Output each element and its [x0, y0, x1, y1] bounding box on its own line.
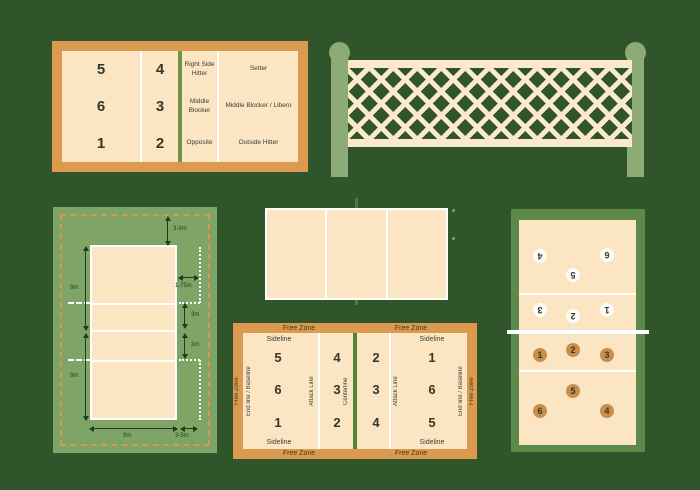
free-zone-label: Free Zone	[234, 323, 240, 459]
player-marker: 4	[533, 249, 547, 263]
measure-label: 3-5m	[175, 433, 189, 439]
end-line-label: End line / Baseline	[458, 333, 464, 449]
center-line	[92, 330, 175, 332]
positions-roles-court: 5 6 1 4 3 2 Right Side Hitter Middle Blo…	[52, 41, 308, 172]
attack-line-bottom	[519, 370, 636, 372]
player-marker: 1	[533, 348, 547, 362]
player-marker: 3	[533, 303, 547, 317]
free-zone-label: Free Zone	[355, 325, 467, 332]
attack-line-right	[389, 333, 391, 449]
player-marker: 1	[600, 303, 614, 317]
attack-line-left	[325, 210, 327, 298]
position-role: Setter	[219, 51, 298, 88]
zone-number: 2	[327, 416, 347, 429]
position-number: 5	[62, 51, 140, 88]
measure-label: 1.75m	[175, 283, 192, 289]
measure-label: 3m	[191, 312, 199, 318]
position-number: 6	[62, 88, 140, 125]
measure-arrow-free-zone	[167, 217, 168, 245]
zone-number: 5	[268, 351, 288, 364]
attack-line-right	[386, 210, 388, 298]
attack-line-left	[318, 333, 320, 449]
tick-mark	[452, 209, 455, 212]
measure-label: 9m	[70, 285, 78, 291]
back-row-numbers-column: 5 6 1	[62, 51, 140, 162]
zone-number: 2	[366, 351, 386, 364]
zones-court-surface: Sideline Sideline Sideline Sideline End …	[243, 333, 467, 449]
measure-arrow-attack-top	[184, 304, 185, 328]
sideline-label: Sideline	[249, 439, 309, 446]
measure-label: 3m	[191, 342, 199, 348]
extension-reference-line	[199, 247, 201, 303]
volleyball-net	[348, 60, 632, 147]
attack-line-bottom	[92, 360, 175, 362]
player-marker: 6	[600, 248, 614, 262]
lineup-court: 4 6 5 3 2 1 2 1 3 5 6 4	[511, 209, 645, 452]
position-role: Right Side Hitter	[182, 51, 217, 88]
attack-line-label: Attack Line	[309, 333, 315, 449]
position-number: 3	[142, 88, 178, 125]
position-number: 2	[142, 125, 178, 162]
measure-label: 9m	[70, 373, 78, 379]
front-row-numbers-column: 4 3 2	[142, 51, 178, 162]
sideline-label: Sideline	[249, 336, 309, 343]
net-mesh	[348, 68, 632, 139]
attack-line-top	[92, 303, 175, 305]
attack-line-extension-right	[179, 359, 200, 361]
net-post-left	[331, 52, 348, 177]
sideline-label: Sideline	[402, 439, 462, 446]
volleyball-vector-set: 5 6 1 4 3 2 Right Side Hitter Middle Blo…	[0, 0, 700, 490]
zone-number: 3	[327, 383, 347, 396]
player-marker: 5	[566, 384, 580, 398]
free-zone-label: Free Zone	[355, 450, 467, 457]
measure-arrow-half-top	[85, 247, 86, 330]
zone-number: 1	[268, 416, 288, 429]
zone-number: 5	[422, 416, 442, 429]
position-number: 1	[62, 125, 140, 162]
dimensions-court: 3-8m 9m 9m 1.75m 3m 3m 9m 3-5m	[53, 207, 217, 453]
zone-number: 6	[422, 383, 442, 396]
position-role: Outside Hitter	[219, 125, 298, 162]
position-role: Middle Blocker	[182, 88, 217, 125]
zone-number: 1	[422, 351, 442, 364]
dimensions-court-surface	[90, 245, 177, 420]
measure-arrow-side-free-zone	[181, 428, 197, 429]
tick-mark	[452, 237, 455, 240]
player-marker: 3	[600, 348, 614, 362]
attack-line-label: Attack Line	[393, 333, 399, 449]
free-zone-label: Free Zone	[243, 325, 355, 332]
back-row-roles-column: Setter Middle Blocker / Libero Outside H…	[219, 51, 298, 162]
top-view-court	[265, 208, 448, 300]
position-role: Opposite	[182, 125, 217, 162]
player-marker: 6	[533, 404, 547, 418]
position-number: 4	[142, 51, 178, 88]
attack-line-top	[519, 293, 636, 295]
front-row-roles-column: Right Side Hitter Middle Blocker Opposit…	[182, 51, 217, 162]
player-marker: 4	[600, 404, 614, 418]
extension-reference-line	[199, 360, 201, 420]
end-line-label: End line / Baseline	[246, 333, 252, 449]
measure-arrow-attack-bottom	[184, 334, 185, 358]
measure-arrow-half-bottom	[85, 334, 86, 420]
player-marker: 2	[566, 309, 580, 323]
player-marker: 2	[566, 343, 580, 357]
measure-arrow-width	[90, 428, 177, 429]
zone-number: 3	[366, 383, 386, 396]
measure-arrow-extension	[179, 277, 198, 278]
free-zone-label: Free Zone	[469, 323, 475, 459]
zone-number: 6	[268, 383, 288, 396]
net-line	[507, 330, 649, 334]
free-zone-label: Free Zone	[243, 450, 355, 457]
zones-court: Free Zone Free Zone Free Zone Free Zone …	[233, 323, 477, 459]
zone-number: 4	[366, 416, 386, 429]
measure-label: 9m	[123, 433, 131, 439]
position-role: Middle Blocker / Libero	[219, 88, 298, 125]
player-marker: 5	[566, 268, 580, 282]
sideline-label: Sideline	[402, 336, 462, 343]
attack-line-extension-left	[68, 302, 90, 304]
attack-line-extension-left	[68, 359, 90, 361]
positions-roles-court-surface: 5 6 1 4 3 2 Right Side Hitter Middle Blo…	[62, 51, 298, 162]
center-line	[353, 333, 357, 449]
measure-label: 3-8m	[173, 226, 187, 232]
zone-number: 4	[327, 351, 347, 364]
